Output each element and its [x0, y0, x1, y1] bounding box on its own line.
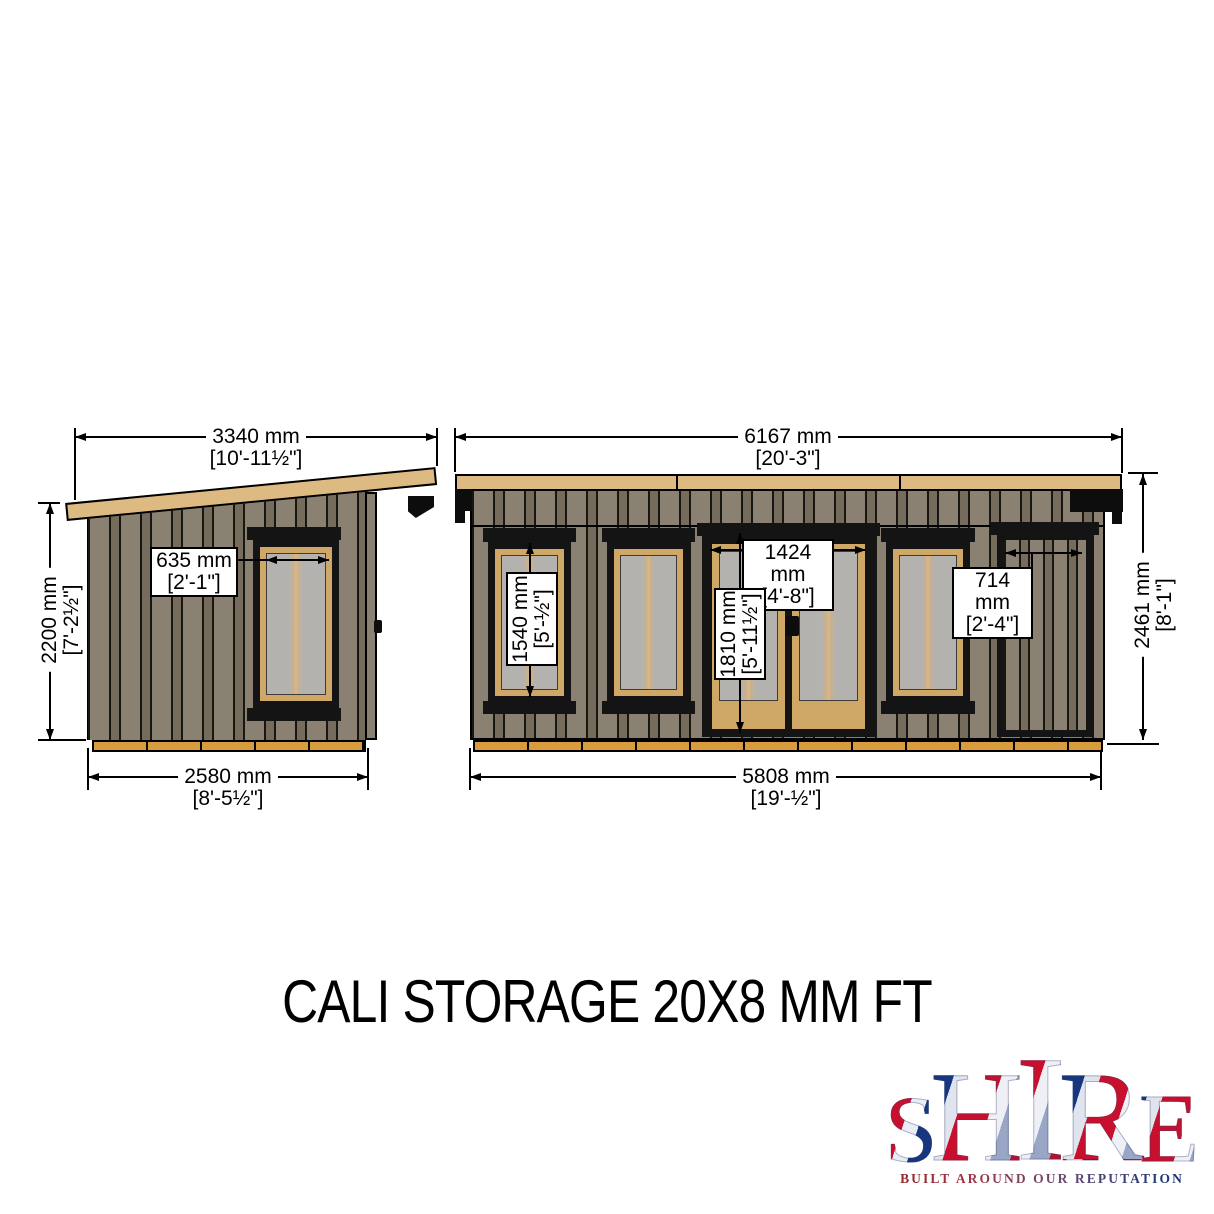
dim-arrow [710, 546, 721, 554]
front-base-dim-ext-right [1100, 748, 1102, 790]
dim-arrow [426, 433, 437, 441]
side-base-skid [92, 740, 366, 752]
side-window-lintel [247, 527, 341, 540]
drawing-canvas: 3340 mm [10'-11½"] 2200 mm [7'-2½"] 2580… [0, 0, 1214, 1214]
side-window-width-dim-label: 635 mm [2'-1"] [150, 547, 238, 597]
dim-arrow [46, 503, 54, 514]
side-window-dim-line [237, 559, 329, 561]
shire-logo-letter: E [1139, 1092, 1199, 1166]
dim-arrow [1139, 729, 1147, 740]
dim-arrow [88, 773, 99, 781]
front-window-2-glass [620, 555, 677, 690]
shire-logo-word: S H I R E [872, 1046, 1212, 1166]
front-base-dim-ext-left [469, 748, 471, 790]
front-roof-width-dim-label: 6167 mm [20'-3"] [713, 426, 863, 470]
dim-arrow [318, 556, 329, 564]
front-base-skid [473, 740, 1103, 752]
side-window-sill [247, 708, 341, 721]
side-window-frame [260, 547, 332, 701]
front-roof-fascia [455, 474, 1122, 491]
front-window-3-lintel [881, 528, 975, 542]
front-left-soffit [455, 489, 472, 511]
side-roof-width-dim-label: 3340 mm [10'-11½"] [181, 426, 331, 470]
front-window-3-sill [881, 701, 975, 714]
front-door-handle [785, 616, 799, 636]
front-fascia-seam-2 [899, 474, 901, 491]
shire-logo-letter: H [930, 1069, 1022, 1166]
front-window-2 [607, 542, 690, 703]
front-fascia-seam-1 [676, 474, 678, 491]
side-base-dim-ext-left [87, 748, 89, 790]
dim-arrow [1111, 433, 1122, 441]
dim-arrow [266, 556, 277, 564]
front-window-height-dim-label: 1540 mm [5'-½"] [506, 572, 558, 666]
dim-arrow [455, 433, 466, 441]
front-door-height-dim-label: 1810 mm [5'-11½"] [714, 588, 766, 680]
front-window-1-sill [483, 701, 576, 714]
dim-arrow [470, 773, 481, 781]
front-height-dim-ext-bottom [1107, 743, 1159, 745]
dim-arrow [526, 686, 534, 697]
dim-arrow [855, 546, 866, 554]
dim-arrow [1139, 474, 1147, 485]
dim-arrow [1071, 549, 1082, 557]
dim-arrow [357, 773, 368, 781]
front-left-soffit-tab [455, 509, 465, 523]
front-window-2-lintel [602, 528, 695, 542]
dim-arrow [526, 543, 534, 554]
dim-arrow [1005, 549, 1016, 557]
side-window [253, 540, 339, 708]
shire-logo-letter: R [1059, 1069, 1144, 1166]
dim-arrow [75, 433, 86, 441]
side-base-dim-ext-right [367, 748, 369, 790]
storage-door-dim-leader [1031, 552, 1033, 568]
dim-arrow [1090, 773, 1101, 781]
front-right-soffit [1070, 489, 1123, 512]
front-base-width-dim-label: 5808 mm [19'-½"] [711, 766, 861, 810]
shire-logo: S H I R E BUILT AROUND OUR REPUTATION [872, 1046, 1212, 1187]
storage-door-width-dim-label: 714 mm [2'-4"] [952, 567, 1033, 639]
front-window-1-lintel [483, 528, 576, 542]
front-window-2-frame [614, 549, 683, 696]
side-door-handle [374, 620, 382, 633]
side-base-width-dim-label: 2580 mm [8'-5½"] [153, 766, 303, 810]
front-window-2-sill [602, 701, 695, 714]
side-corner-board [365, 492, 377, 740]
front-right-soffit-tab [1112, 510, 1122, 524]
shire-logo-tagline: BUILT AROUND OUR REPUTATION [872, 1171, 1212, 1187]
side-window-glass [266, 553, 326, 695]
side-roof-soffit [408, 496, 434, 518]
drawing-title: CALI STORAGE 20X8 MM FT [103, 970, 1111, 1034]
front-window-3-glass [899, 555, 957, 690]
dim-arrow [46, 729, 54, 740]
dim-arrow [736, 722, 744, 733]
